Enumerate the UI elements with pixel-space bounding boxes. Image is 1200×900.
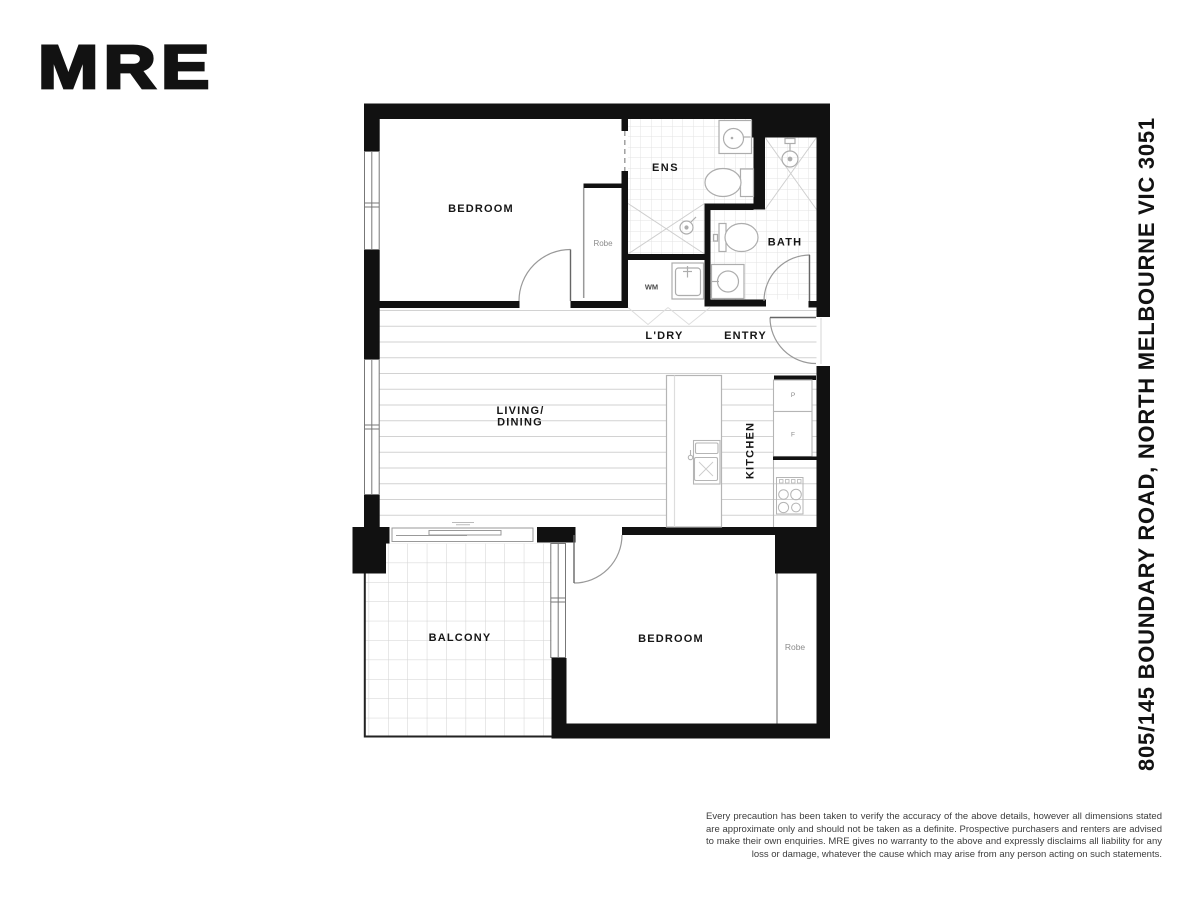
svg-text:WM: WM bbox=[645, 283, 658, 292]
svg-text:L'DRY: L'DRY bbox=[645, 330, 683, 342]
svg-text:BALCONY: BALCONY bbox=[429, 632, 492, 644]
svg-text:Robe: Robe bbox=[785, 642, 806, 652]
svg-text:LIVING/: LIVING/ bbox=[496, 405, 544, 417]
svg-text:ENTRY: ENTRY bbox=[724, 330, 767, 342]
svg-text:BEDROOM: BEDROOM bbox=[448, 203, 514, 215]
svg-text:P: P bbox=[791, 392, 795, 399]
svg-text:F: F bbox=[791, 432, 795, 439]
svg-text:Robe: Robe bbox=[593, 239, 613, 248]
svg-text:BATH: BATH bbox=[768, 237, 803, 249]
svg-text:ENS: ENS bbox=[652, 162, 679, 174]
svg-text:BEDROOM: BEDROOM bbox=[638, 633, 704, 645]
svg-text:KITCHEN: KITCHEN bbox=[745, 422, 757, 479]
svg-text:DINING: DINING bbox=[497, 417, 543, 429]
